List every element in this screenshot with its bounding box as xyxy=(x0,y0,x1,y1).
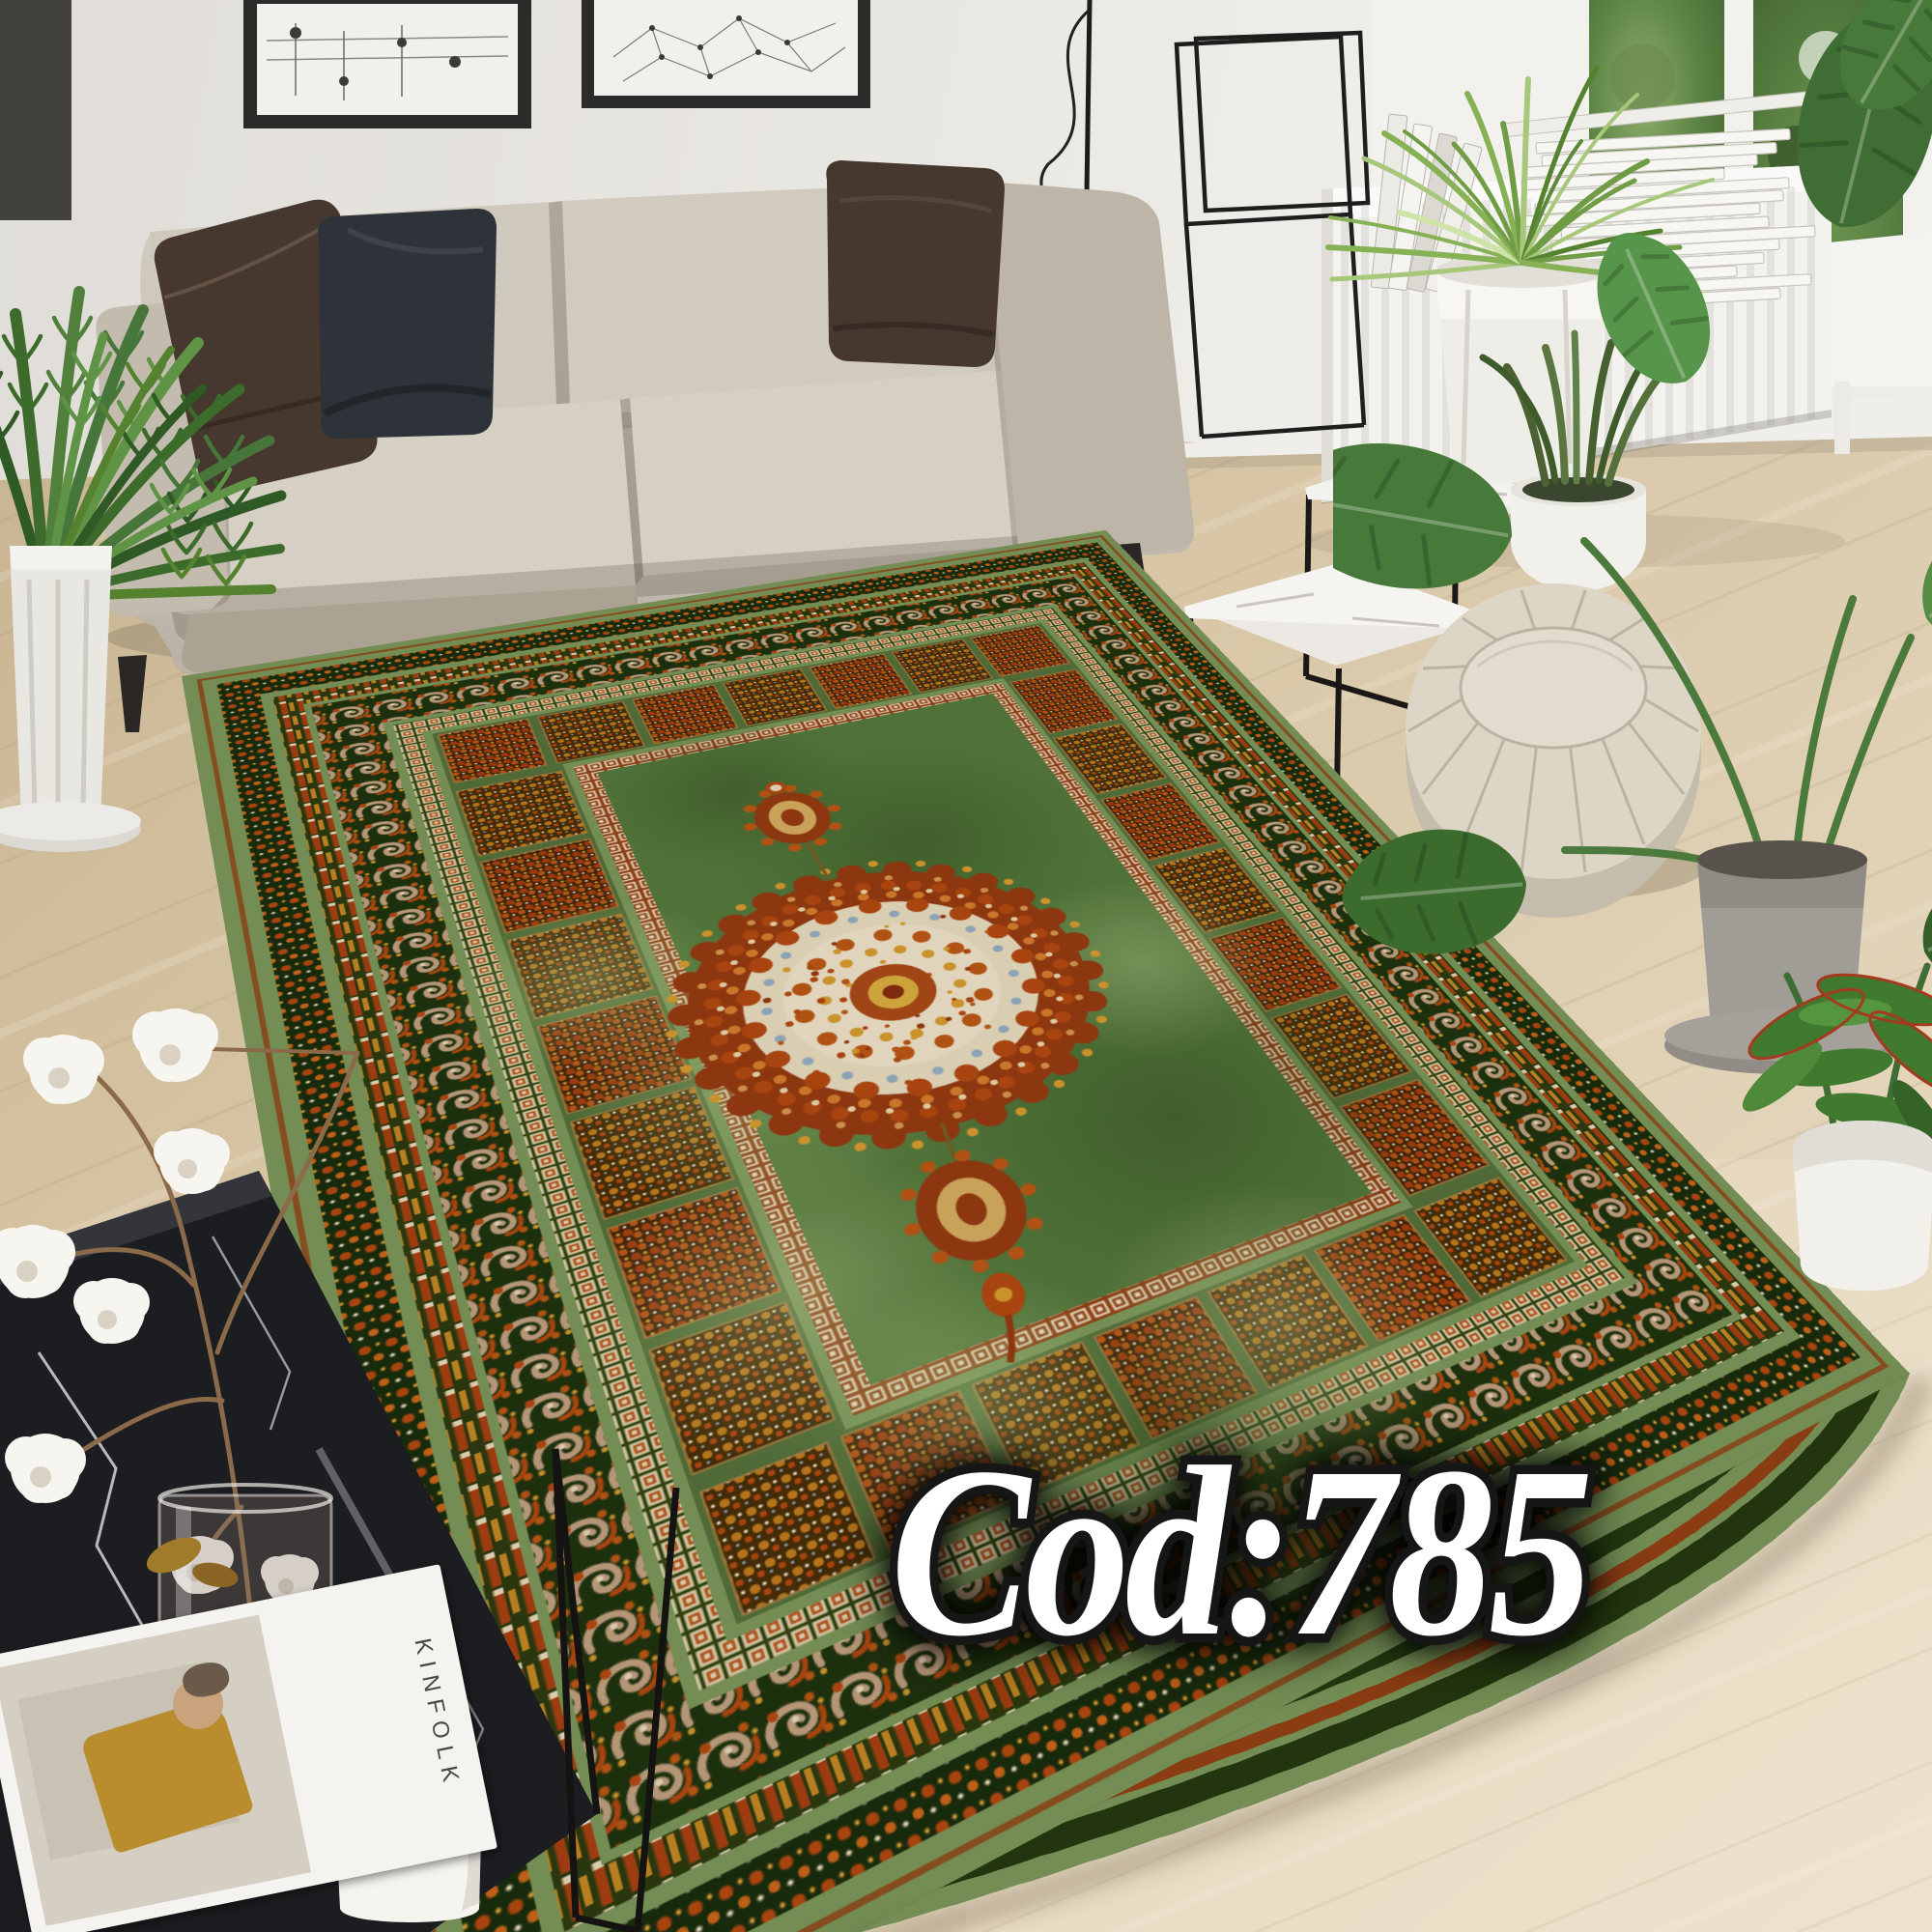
svg-text:Cod:785: Cod:785 xyxy=(891,1417,1588,1687)
